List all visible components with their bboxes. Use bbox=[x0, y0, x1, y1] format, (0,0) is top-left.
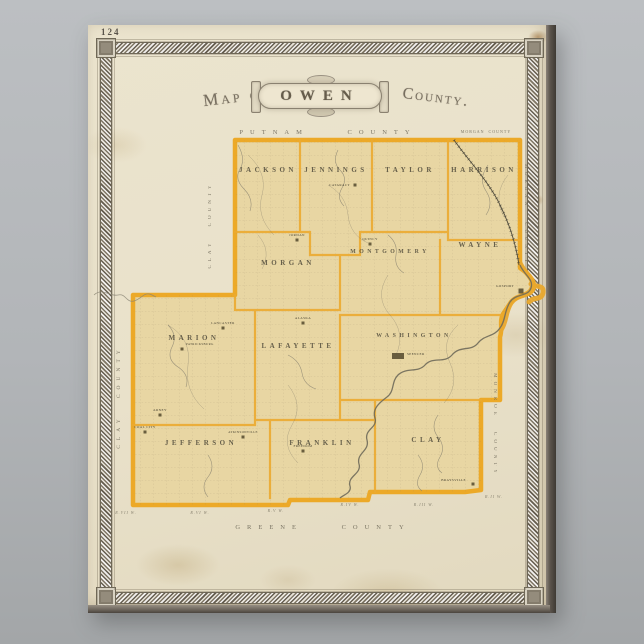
town-marker bbox=[392, 353, 404, 359]
title-cartouche: OWEN bbox=[250, 79, 390, 113]
town-label: COAL CITY bbox=[134, 425, 156, 429]
town-label: JORDAN bbox=[289, 233, 305, 237]
town-label: ATKINSONVILLE bbox=[228, 430, 258, 434]
town-marker bbox=[302, 450, 305, 453]
town-marker bbox=[242, 436, 245, 439]
township-label: JENNINGS bbox=[304, 166, 367, 174]
town-label: LANCASTER bbox=[211, 321, 235, 325]
town-label: PATRICKSBURG bbox=[186, 342, 214, 346]
township-label: CLAY bbox=[411, 436, 444, 444]
town-marker bbox=[159, 414, 162, 417]
poster-edge-bottom bbox=[88, 605, 550, 613]
town-marker bbox=[369, 243, 372, 246]
range-label: R.V W. bbox=[267, 508, 285, 513]
town-label: ALASKA bbox=[295, 316, 311, 320]
neighbor-county-label: CLAY COUNTY bbox=[208, 181, 213, 268]
town-marker bbox=[181, 348, 184, 351]
township-label: JACKSON bbox=[239, 166, 297, 174]
town-label: FREEDOM bbox=[293, 444, 312, 448]
atlas-poster: 124 bbox=[88, 25, 556, 613]
township-label: WAYNE bbox=[459, 241, 502, 249]
township-label: JEFFERSON bbox=[165, 439, 237, 447]
town-label: BRAYSVILLE bbox=[441, 478, 466, 482]
title-county-name: OWEN bbox=[258, 83, 382, 109]
screenshot-root: { "page_number": "124", "title": { "pref… bbox=[0, 0, 644, 644]
range-label: R.VII W. bbox=[114, 510, 137, 515]
township-label: HARRISON bbox=[451, 166, 517, 174]
neighbor-county-label: CLAY COUNTY bbox=[116, 345, 122, 449]
poster-edge-right bbox=[546, 25, 556, 613]
neighbor-county-label: MORGAN COUNTY bbox=[461, 129, 511, 134]
title-county-word: County. bbox=[387, 83, 484, 113]
township-label: LAFAYETTE bbox=[261, 342, 334, 350]
range-label: R.III W. bbox=[413, 502, 434, 507]
township-label: MONTGOMERY bbox=[350, 249, 430, 255]
town-label: SPENCER bbox=[407, 352, 425, 356]
aged-paper: 124 bbox=[88, 25, 546, 606]
town-label: ARNEY bbox=[153, 408, 167, 412]
town-marker bbox=[222, 327, 225, 330]
township-label: TAYLOR bbox=[385, 166, 435, 174]
range-label: R.VI W. bbox=[189, 510, 209, 515]
range-label: R.IV W. bbox=[339, 502, 359, 507]
town-marker bbox=[354, 184, 357, 187]
town-label: GOSPORT bbox=[496, 284, 515, 288]
township-label: MARION bbox=[169, 334, 220, 342]
town-marker bbox=[144, 431, 147, 434]
town-marker bbox=[519, 289, 524, 294]
town-marker bbox=[472, 483, 475, 486]
map-title: Map of OWEN County. bbox=[88, 65, 546, 125]
town-label: QUINCY bbox=[362, 237, 378, 241]
township-label: WASHINGTON bbox=[376, 333, 451, 339]
neighbor-county-label: MORGAN COUNTY bbox=[523, 164, 528, 267]
neighbor-county-label: MONROE COUNTY bbox=[492, 373, 497, 477]
range-label: R.II W. bbox=[484, 494, 503, 499]
town-marker bbox=[296, 239, 299, 242]
neighbor-county-label: PUTNAM COUNTY bbox=[239, 129, 416, 136]
town-marker bbox=[302, 322, 305, 325]
township-label: MORGAN bbox=[261, 259, 315, 267]
neighbor-county-label: GREENE COUNTY bbox=[235, 524, 410, 531]
town-label: CATARACT bbox=[329, 183, 350, 187]
